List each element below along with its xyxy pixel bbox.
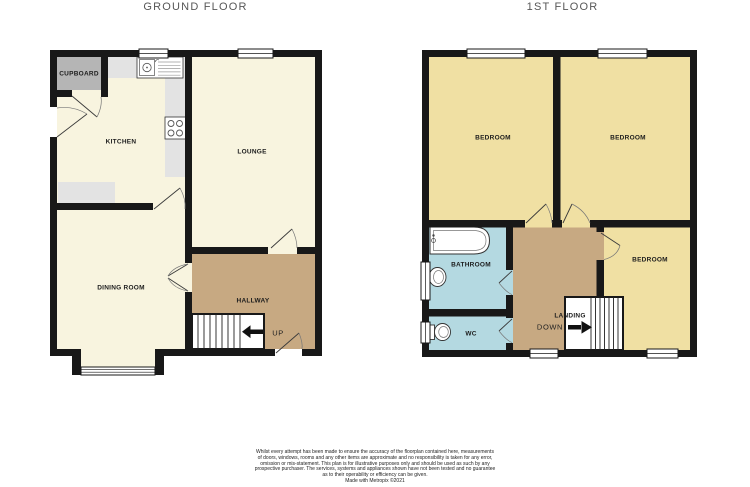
ground-floor-plan: CUPBOARD KITCHEN LOUNGE DINING ROOM HALL… xyxy=(45,45,330,380)
floor-title-first: 1ST FLOOR xyxy=(420,1,705,14)
room-label-kitchen: KITCHEN xyxy=(106,139,137,146)
room-label-lounge: LOUNGE xyxy=(237,149,266,156)
ground-floor-svg xyxy=(45,45,330,380)
stairs-up-icon xyxy=(192,314,264,349)
room-label-dining-room: DINING ROOM xyxy=(97,285,145,292)
bay-window xyxy=(81,367,155,375)
bathtub-icon xyxy=(430,227,490,254)
room-label-bedroom-3: BEDROOM xyxy=(632,257,668,264)
stove-icon xyxy=(165,117,186,139)
window xyxy=(530,349,558,358)
room-label-bathroom: BATHROOM xyxy=(451,262,491,269)
window xyxy=(598,49,647,58)
room-label-landing: LANDING xyxy=(554,313,585,320)
room-label-bedroom-1: BEDROOM xyxy=(475,135,511,142)
stairs-direction-down: DOWN xyxy=(537,323,563,332)
window xyxy=(421,262,430,300)
room-label-cupboard: CUPBOARD xyxy=(59,70,99,77)
sink-icon xyxy=(137,57,183,78)
toilet-icon xyxy=(429,324,451,341)
stairs-direction-up: UP xyxy=(272,329,284,338)
basin-icon xyxy=(429,268,446,287)
disclaimer-credit: Made with Metropix ©2021 xyxy=(0,479,750,485)
room-label-wc: WC xyxy=(465,331,476,338)
first-floor-plan: BEDROOM BEDROOM BEDROOM BATHROOM WC LAND… xyxy=(420,45,705,365)
disclaimer: Whilst every attempt has been made to en… xyxy=(0,450,750,485)
stairs-down-icon xyxy=(565,297,623,350)
room-label-hallway: HALLWAY xyxy=(237,298,270,305)
window xyxy=(238,49,273,58)
window xyxy=(139,49,168,58)
window xyxy=(421,322,430,343)
room-label-bedroom-2: BEDROOM xyxy=(610,135,646,142)
window xyxy=(647,349,678,358)
floorplan-canvas: GROUND FLOOR 1ST FLOOR xyxy=(0,0,750,487)
window xyxy=(467,49,525,58)
floor-title-ground: GROUND FLOOR xyxy=(53,1,338,14)
